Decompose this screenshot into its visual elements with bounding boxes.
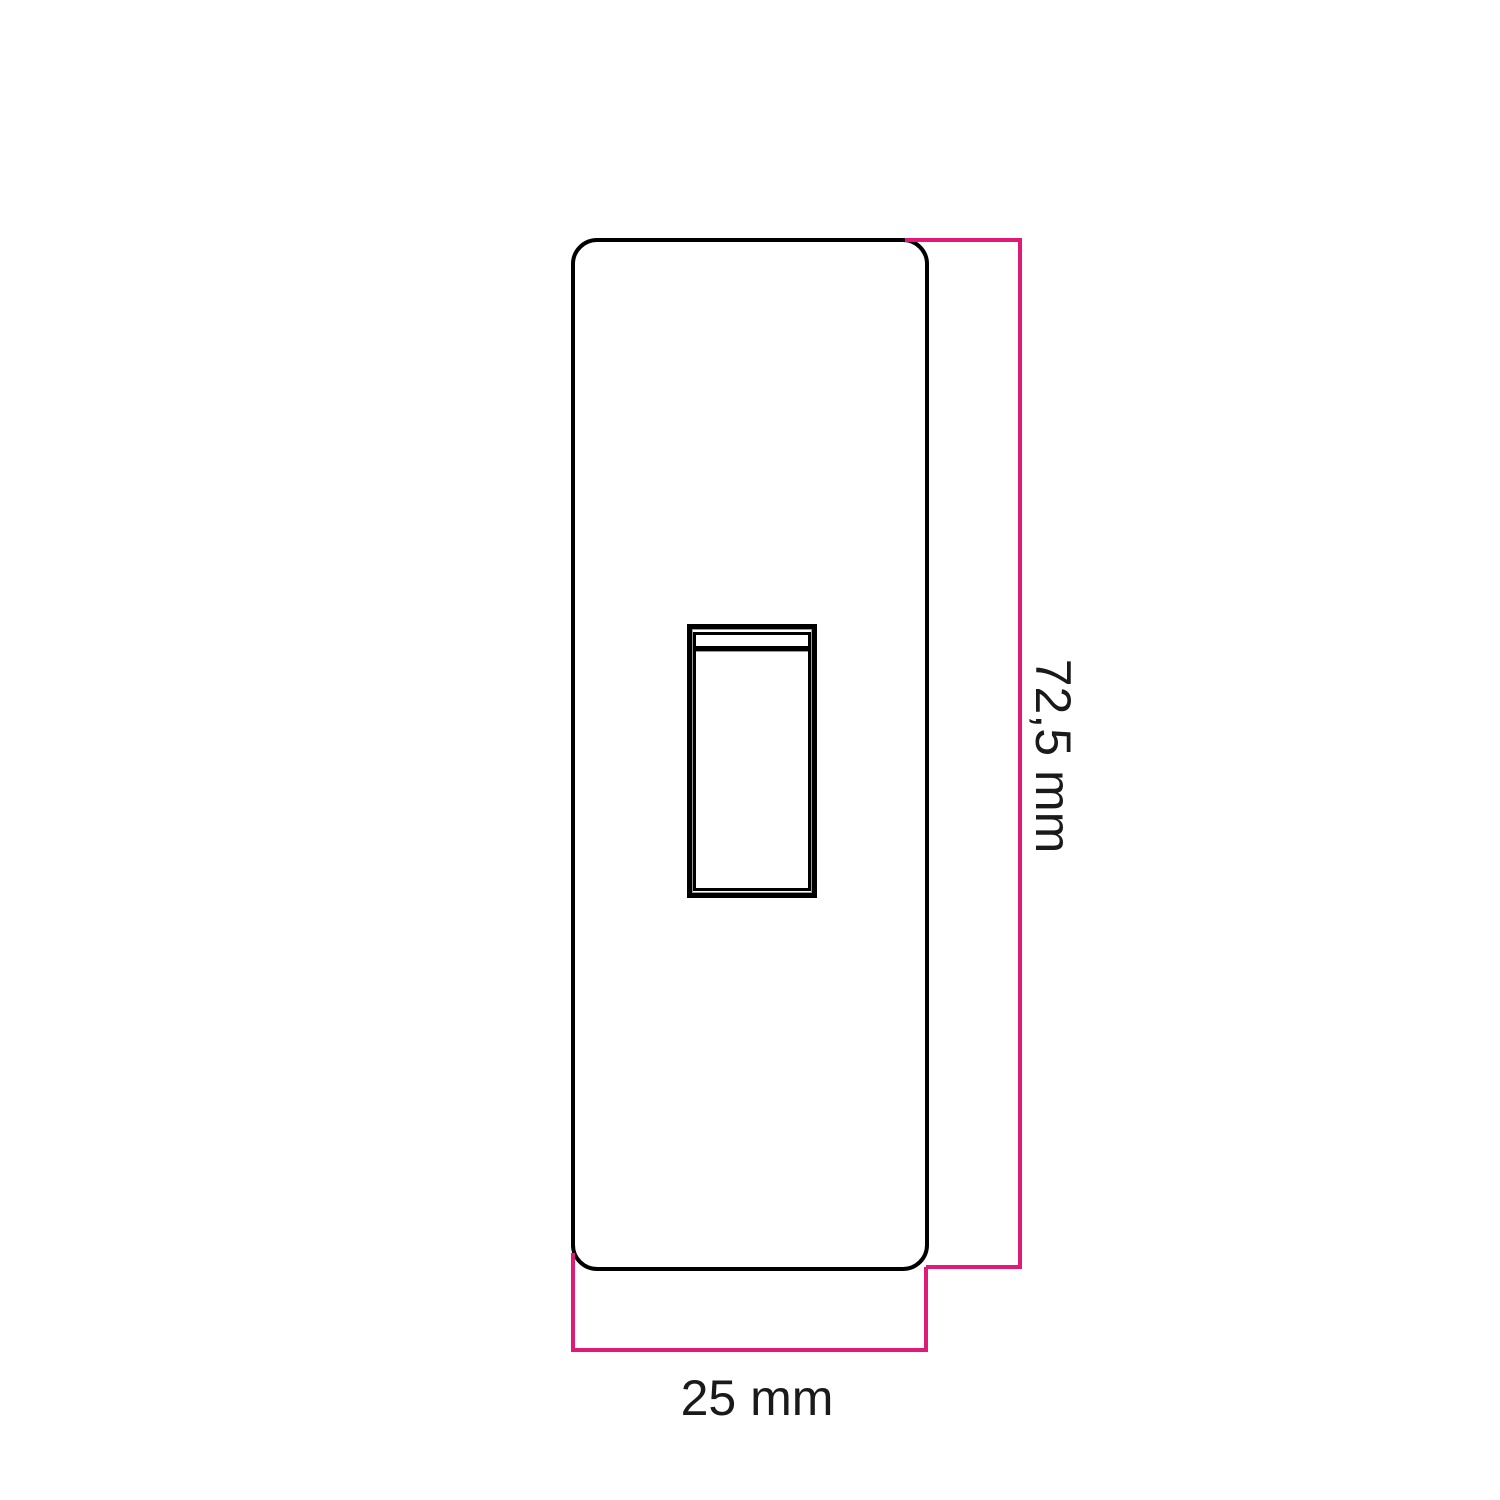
height-dimension-line xyxy=(1018,238,1022,1269)
rocker-switch-top-edge xyxy=(696,646,808,652)
height-dimension-extension-bottom xyxy=(926,1265,1022,1269)
drawing-canvas: 72,5 mm 25 mm xyxy=(0,0,1500,1500)
width-dimension-extension-right xyxy=(924,1267,928,1352)
width-dimension-label: 25 mm xyxy=(681,1373,834,1423)
height-dimension-label: 72,5 mm xyxy=(1028,659,1078,854)
height-dimension-extension-top xyxy=(905,238,1022,242)
width-dimension-extension-left xyxy=(571,1253,575,1352)
rocker-switch-button xyxy=(693,632,811,891)
width-dimension-line xyxy=(571,1348,928,1352)
